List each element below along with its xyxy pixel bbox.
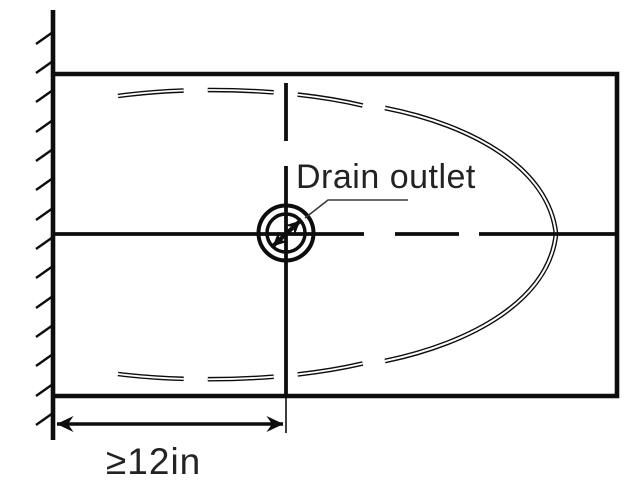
min-distance-label: ≥12in (106, 443, 201, 480)
drain-outlet-label: Drain outlet (296, 160, 476, 194)
leader-line (305, 200, 408, 218)
wall (36, 10, 53, 440)
diagram-canvas: Drain outlet ≥12in (0, 0, 640, 488)
drain-location-diagram (0, 0, 640, 488)
wall-hatch-icon (36, 32, 53, 425)
drain-symbol-icon (259, 206, 314, 261)
